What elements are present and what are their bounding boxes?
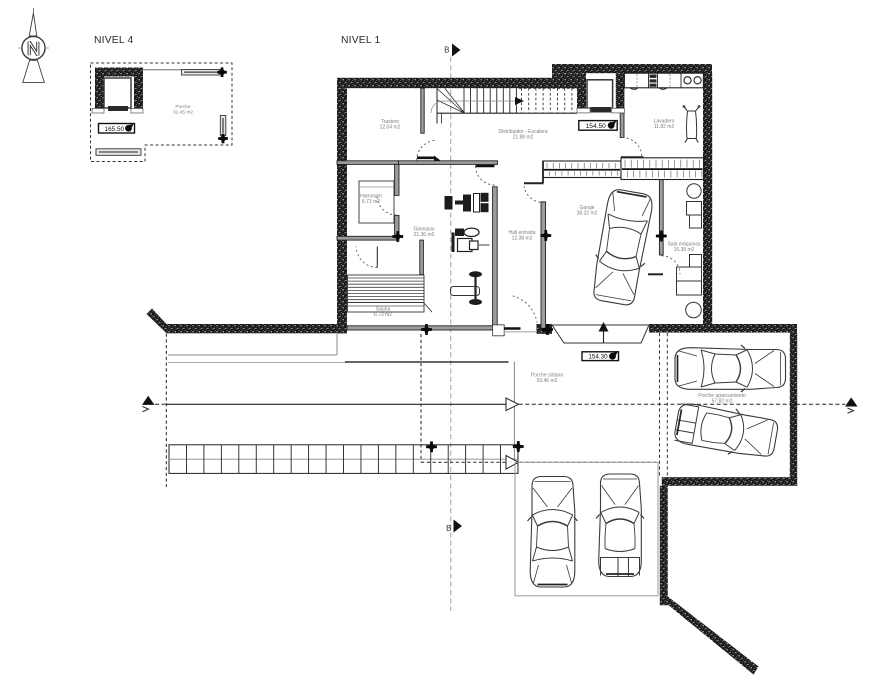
svg-text:21.88 m2: 21.88 m2 bbox=[513, 135, 534, 141]
svg-text:154.30: 154.30 bbox=[588, 353, 608, 360]
svg-text:38.32 m2: 38.32 m2 bbox=[577, 211, 598, 217]
svg-text:93.46 m2: 93.46 m2 bbox=[537, 378, 558, 384]
svg-text:6.73 m2: 6.73 m2 bbox=[362, 199, 380, 205]
svg-text:154.50: 154.50 bbox=[586, 123, 607, 130]
svg-text:6.73 m2: 6.73 m2 bbox=[374, 312, 392, 318]
svg-text:NIVEL 4: NIVEL 4 bbox=[94, 35, 133, 46]
svg-text:12.04 m2: 12.04 m2 bbox=[380, 125, 401, 131]
svg-text:165.50: 165.50 bbox=[105, 126, 125, 133]
svg-text:B: B bbox=[444, 46, 449, 55]
svg-text:B: B bbox=[446, 524, 451, 533]
svg-text:12.38 m2: 12.38 m2 bbox=[512, 236, 533, 242]
svg-text:11.82 m2: 11.82 m2 bbox=[654, 124, 675, 130]
svg-text:16.38 m2: 16.38 m2 bbox=[674, 247, 695, 253]
svg-text:57.82 m2: 57.82 m2 bbox=[712, 399, 733, 405]
svg-text:31.45 m2: 31.45 m2 bbox=[173, 110, 193, 116]
svg-text:Porche: Porche bbox=[175, 104, 191, 110]
svg-text:NIVEL 1: NIVEL 1 bbox=[341, 35, 380, 46]
svg-text:21.36 m2: 21.36 m2 bbox=[414, 232, 435, 238]
